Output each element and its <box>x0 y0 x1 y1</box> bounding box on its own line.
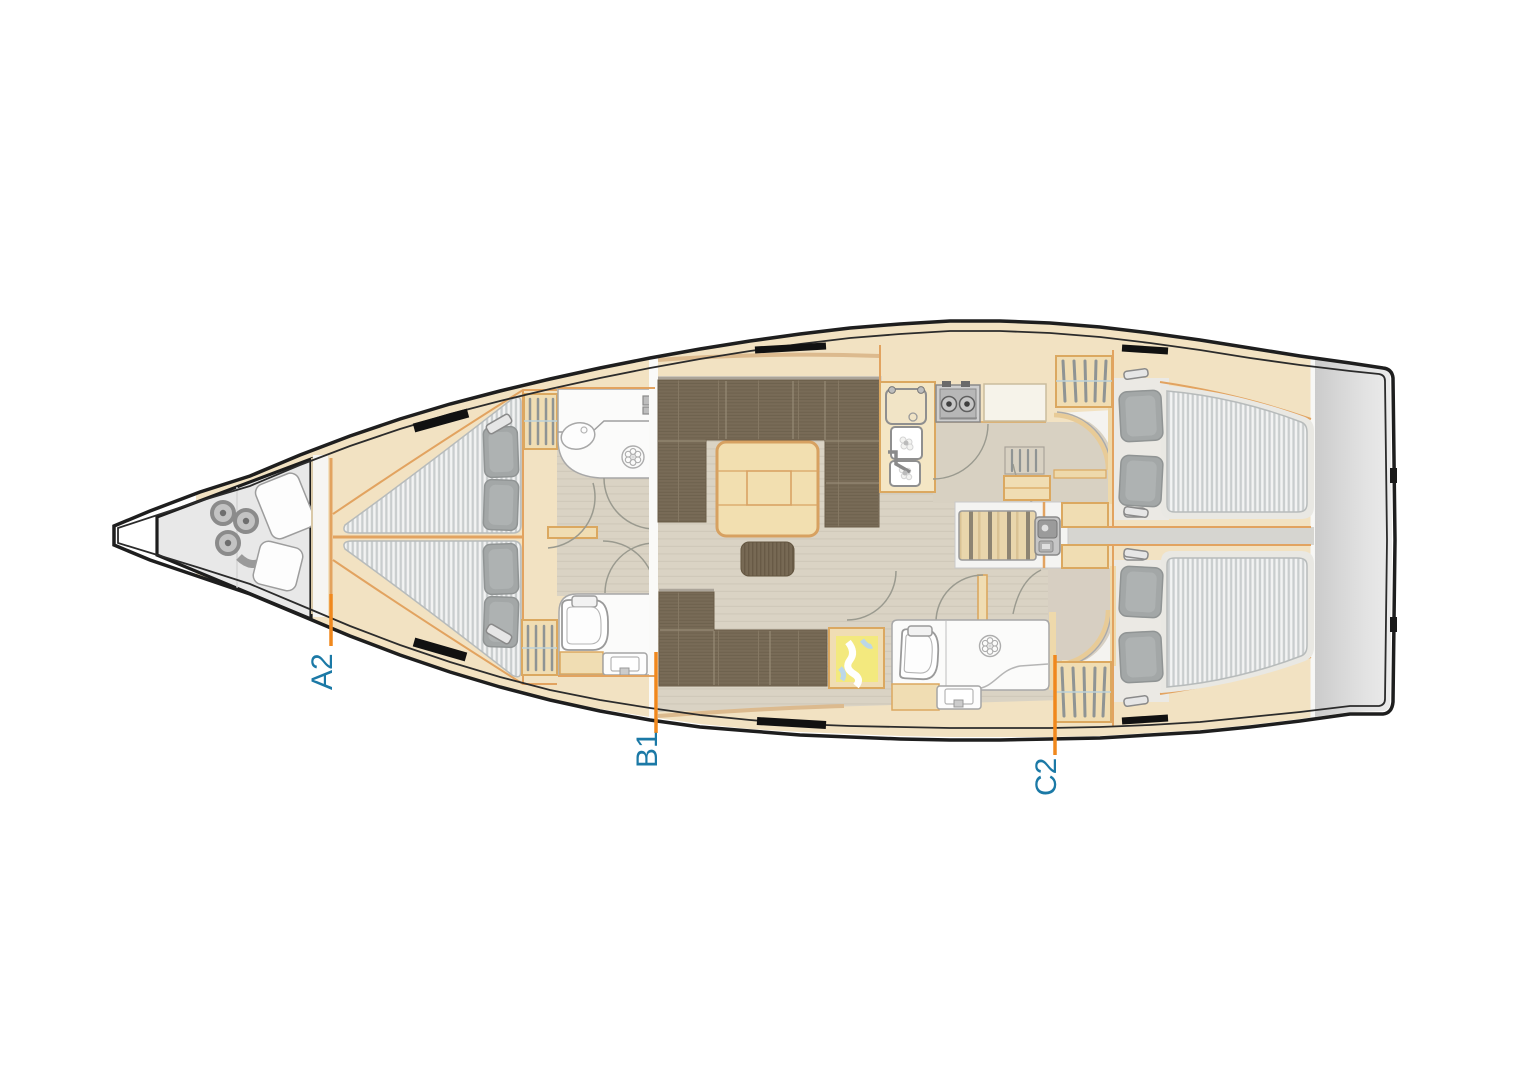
svg-text:B1: B1 <box>631 731 664 768</box>
svg-text:A2: A2 <box>306 653 339 690</box>
svg-text:C2: C2 <box>1030 758 1063 796</box>
